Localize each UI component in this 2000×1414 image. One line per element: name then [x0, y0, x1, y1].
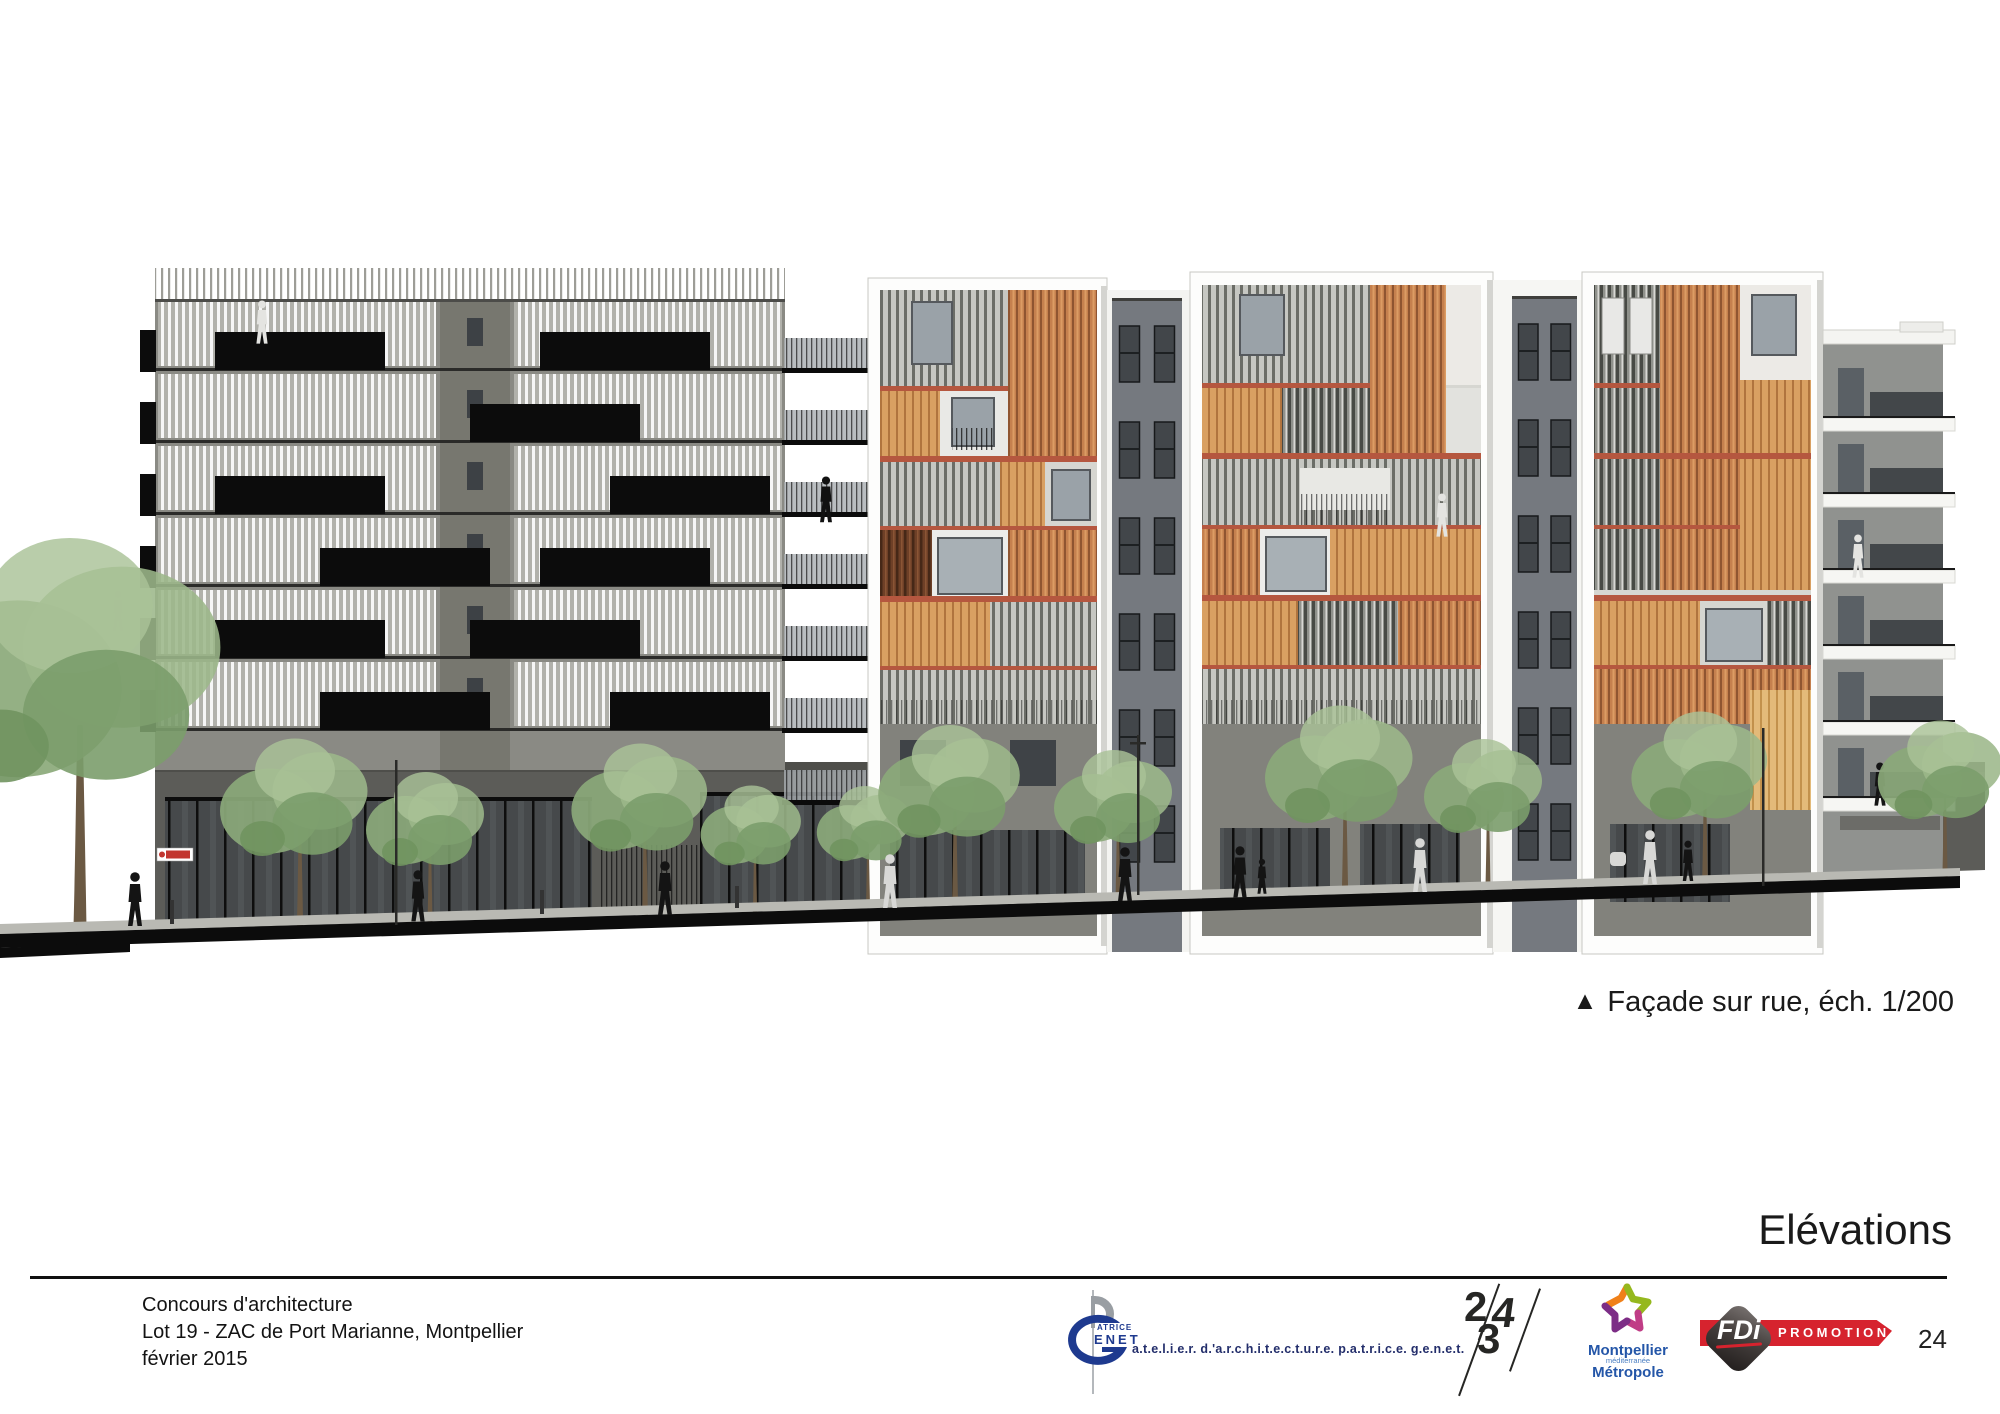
fdi-banner-label: PROMOTION: [1778, 1325, 1890, 1340]
caption-text: Façade sur rue, éch. 1/200: [1607, 986, 1954, 1018]
connector-tower-b: [1493, 280, 1582, 952]
page-number: 24: [1918, 1324, 1947, 1355]
architect-name-top: ATRICE: [1095, 1323, 1134, 1332]
footer-divider: [30, 1276, 1947, 1279]
elevation-drawing: [0, 0, 2000, 1000]
footer-project-line1: Concours d'architecture: [142, 1292, 523, 1319]
presentation-page: ▲Façade sur rue, éch. 1/200 Elévations C…: [0, 0, 2000, 1414]
fdi-name: FDi: [1717, 1315, 1761, 1346]
walkway-galleries: [782, 338, 874, 805]
louvered-block-4: [1582, 272, 1823, 954]
left-block: [113, 268, 785, 770]
louvered-block-2: [868, 278, 1107, 954]
footer-project-line2: Lot 19 - ZAC de Port Marianne, Montpelli…: [142, 1319, 523, 1346]
louvered-block-3: [1190, 272, 1493, 954]
metropole-star-icon: [1594, 1281, 1660, 1341]
drawing-caption: ▲Façade sur rue, éch. 1/200: [1354, 986, 1954, 1019]
section-title: Elévations: [1252, 1206, 1952, 1254]
architect-logo: ATRICE ENET a.t.e.l.i.e.r. d.'a.r.c.h.i.…: [1058, 1288, 1478, 1398]
metropole-logo: Montpellier méditerranée Métropole: [1570, 1281, 1686, 1396]
footer-project-info: Concours d'architecture Lot 19 - ZAC de …: [142, 1292, 523, 1373]
metropole-name-line3: Métropole: [1570, 1364, 1686, 1381]
architect-tagline: a.t.e.l.i.e.r. d.'a.r.c.h.i.t.e.c.t.u.r.…: [1132, 1342, 1465, 1356]
agency-234-slash-icon: [1458, 1330, 1484, 1396]
fdi-logo: PROMOTION FDi: [1686, 1297, 1906, 1379]
caption-triangle-icon: ▲: [1573, 987, 1598, 1015]
agency-234-logo: 2 4 3: [1456, 1288, 1551, 1396]
footer-project-line3: février 2015: [142, 1346, 523, 1373]
